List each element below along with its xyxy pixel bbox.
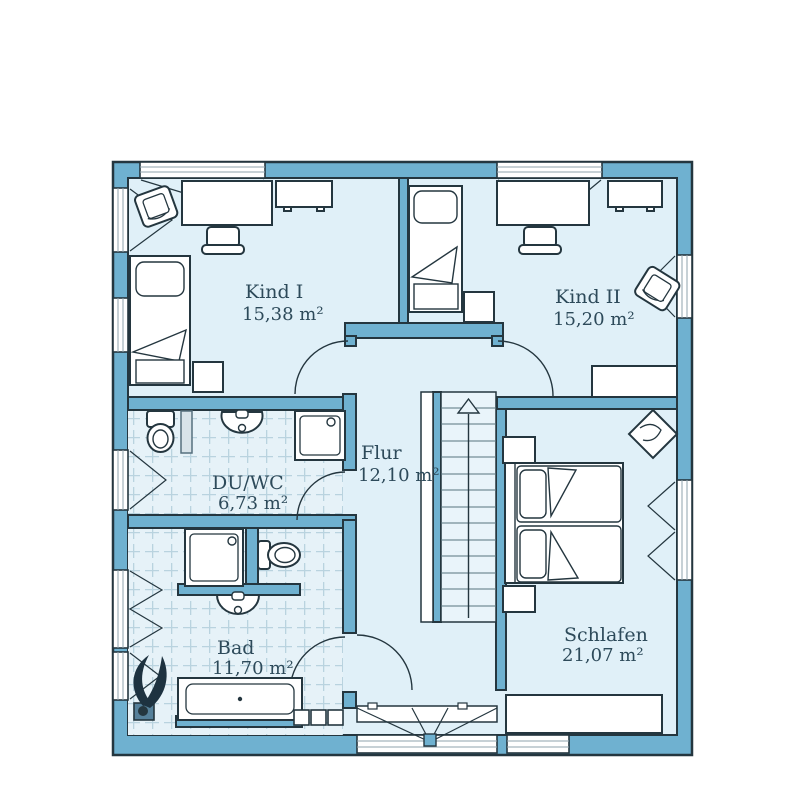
sideboard-low [592,366,677,397]
room-area-flur: 12,10 m² [358,465,440,486]
wall-kind1-duwc [128,397,356,410]
washing-boxes [294,710,343,725]
nightstand [503,437,535,463]
toilet [147,411,174,452]
window-top-kind2 [497,162,602,178]
nightstand [503,586,535,612]
room-area-bad: 11,70 m² [212,658,294,679]
room-label-kind2: Kind II [555,286,621,308]
window-top-kind1 [140,162,265,178]
window-left-bad-b [113,652,128,700]
single-bed [130,256,190,385]
room-area-schlafen: 21,07 m² [562,645,644,666]
wall-kind2-schlafen [497,397,677,409]
floor-plan-page: Kind I 15,38 m² Kind II 15,20 m² Flur 12… [0,0,800,800]
room-area-kind1: 15,38 m² [242,304,324,325]
room-label-flur: Flur [361,442,402,464]
sideboard [506,695,662,733]
bathtub [178,678,302,720]
wall-stair-spine [433,392,441,622]
room-label-bad: Bad [217,637,254,659]
room-label-kind1: Kind I [245,281,303,303]
wall-kind1-kind2 [399,178,408,323]
wall-flur-top [345,323,503,338]
window-left-bad-a [113,570,128,648]
wall-bad-wc-partition [246,528,258,586]
floor-plan-drawing: Kind I 15,38 m² Kind II 15,20 m² Flur 12… [0,0,800,800]
wall-flur-west-b [343,520,356,633]
toilet [258,541,300,569]
wardrobe-cube [193,362,223,392]
desk [182,181,272,225]
window-right-schlafen [677,480,692,580]
stair-railing [421,392,433,622]
shower [295,411,345,460]
sideboard [608,181,662,211]
shower [185,529,243,586]
single-bed [409,186,462,312]
desk [497,181,589,225]
room-label-schlafen: Schlafen [564,624,648,646]
partition-screen [181,411,192,453]
desk-chair [202,227,244,254]
window-left-kind1-b [113,298,128,352]
window-left-duwc [113,450,128,510]
room-area-kind2: 15,20 m² [553,309,635,330]
desk-chair [519,227,561,254]
sideboard [276,181,332,211]
wall-duwc-bad [128,515,356,528]
window-bottom-schlafen [507,735,569,753]
wall-flur-west-stub [343,692,356,708]
room-label-duwc: DU/WC [212,472,284,494]
wardrobe-cube [464,292,494,322]
double-bed [505,463,623,583]
room-area-duwc: 6,73 m² [218,493,288,514]
window-left-kind1-a [113,188,128,252]
